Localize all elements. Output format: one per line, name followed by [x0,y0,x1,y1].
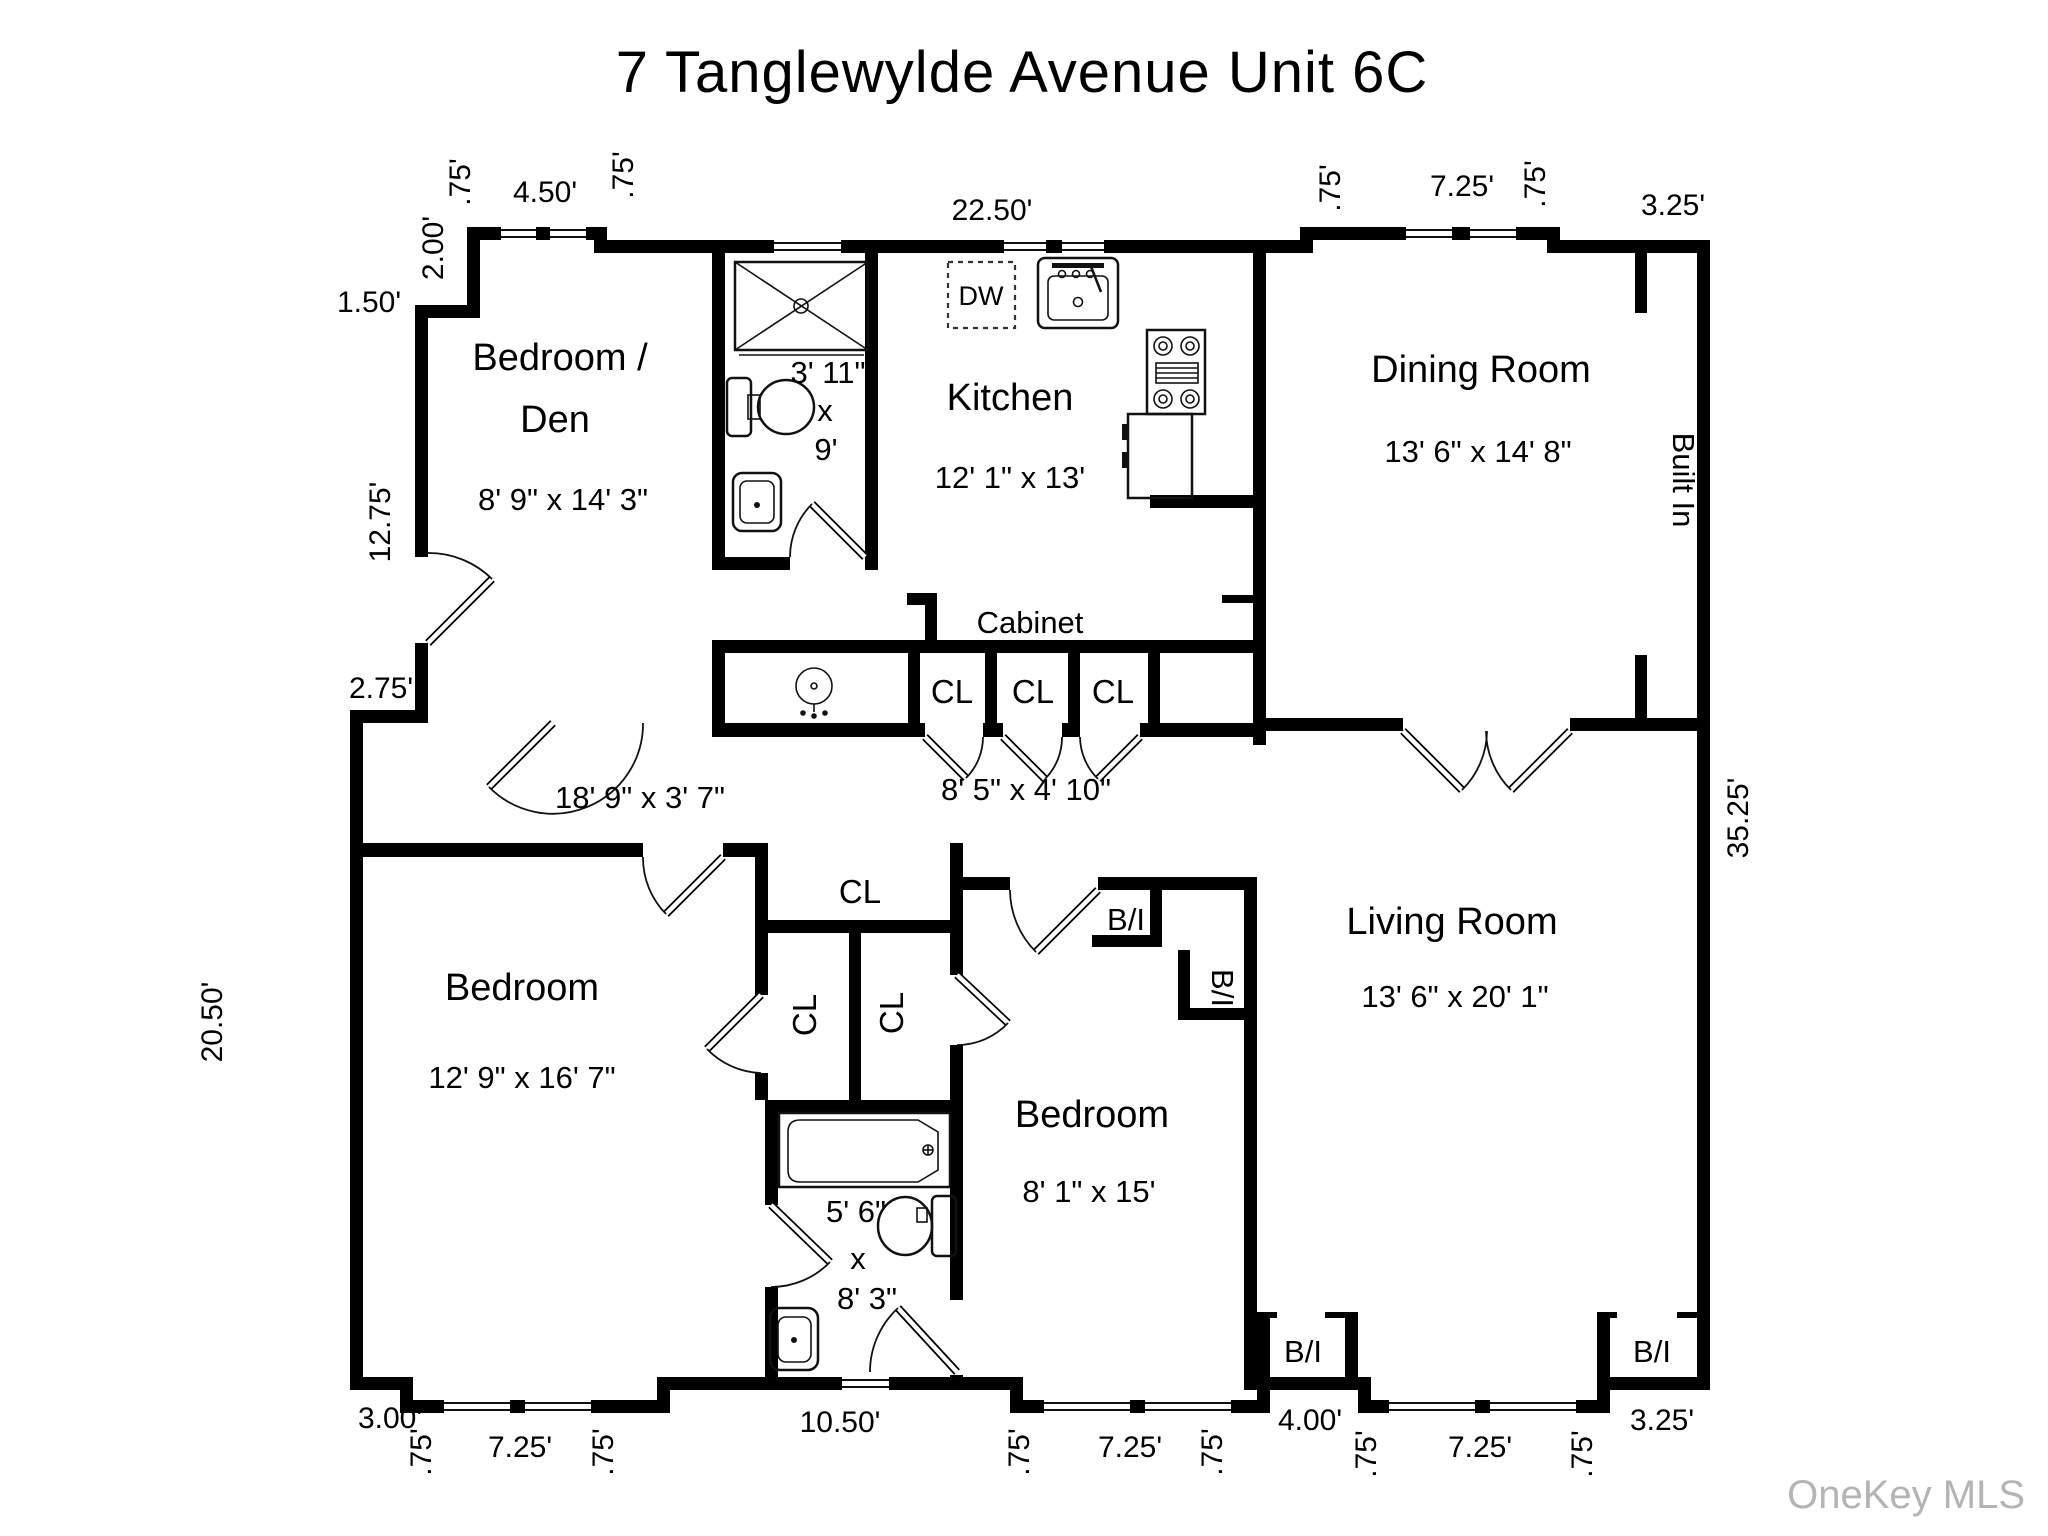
room-dining: Dining Room [1371,349,1591,391]
dim-bot-075-b: .75' [587,1428,620,1475]
bathtub [779,1113,950,1187]
dim-top-200: 2.00' [417,216,450,280]
dim-bot-075-f: .75' [1566,1430,1599,1477]
dims-bedroom-middle: 8' 1" x 15' [1022,1174,1155,1209]
closet-label-1: CL [931,673,973,710]
dim-bot-725-b: 7.25' [1098,1431,1162,1464]
room-kitchen: Kitchen [947,377,1074,419]
dims-bath-lower-w: 5' 6" [826,1194,886,1229]
room-bedroom-left: Bedroom [445,967,599,1009]
dims-bath-upper-w: 3' 11" [791,355,866,390]
dim-left-275: 2.75' [349,672,413,705]
closet-left-door [707,995,761,1073]
dims-bath-lower-l: 8' 3" [837,1281,897,1316]
closet-label-6: CL [873,992,910,1034]
dim-bot-325: 3.25' [1630,1404,1694,1437]
bath-upper-door [790,504,865,557]
built-in-2: B/I [1205,969,1240,1007]
dim-top-075-b: .75' [607,151,640,198]
entry-door [428,553,492,643]
dim-top-075-c: .75' [1314,164,1347,211]
stove [1147,330,1205,414]
room-living: Living Room [1346,901,1557,943]
kitchen-sink [1038,258,1118,328]
dims-hallway: 18' 9" x 3' 7" [555,780,725,815]
ceiling-light [796,668,832,719]
dims-bath-lower-x: x [850,1241,866,1276]
closet-label-2: CL [1012,673,1054,710]
bedroom-left-door [643,857,723,914]
dim-bot-075-c: .75' [1003,1428,1036,1475]
dims-bedroom-left: 12' 9" x 16' 7" [428,1060,615,1095]
closet-label-3: CL [1092,673,1134,710]
dim-bot-1050: 10.50' [800,1406,881,1439]
dim-bot-075-a: .75' [405,1428,438,1475]
dims-living: 13' 6" x 20' 1" [1361,979,1548,1014]
dim-top-075-d: .75' [1519,160,1552,207]
floor-plan-page: 7 Tanglewylde Avenue Unit 6C Bedroom / D… [0,0,2048,1536]
built-in-1: B/I [1107,902,1145,937]
built-in-3: B/I [1284,1334,1322,1369]
watermark: OneKey MLS [1787,1473,2025,1517]
room-bedroom-middle: Bedroom [1015,1094,1169,1136]
closet-label-5: CL [786,994,823,1036]
dim-top-2250: 22.50' [952,194,1033,227]
refrigerator [1122,414,1192,498]
dim-right-3525: 35.25' [1722,778,1755,859]
dims-dining: 13' 6" x 14' 8" [1384,434,1571,469]
dim-top-075-a: .75' [444,158,477,205]
sink-upper [733,473,781,531]
dim-bot-725-c: 7.25' [1448,1431,1512,1464]
room-bedroom-den-line1: Bedroom / [472,337,648,379]
toilet-lower [878,1196,956,1256]
built-in-4: B/I [1633,1334,1671,1369]
dims-bath-upper-x: x [817,393,833,428]
bedroom-middle-door [1010,890,1098,952]
dim-bot-400: 4.00' [1278,1404,1342,1437]
living-room-double-door [1403,731,1570,790]
bedroom-middle-second-door [870,1308,957,1372]
dim-top-725: 7.25' [1430,170,1494,203]
dim-left-1275: 12.75' [364,482,397,563]
page-title: 7 Tanglewylde Avenue Unit 6C [616,40,1429,105]
dishwasher-label: DW [959,281,1004,311]
dims-bath-upper-l: 9' [814,432,837,467]
dim-top-150: 1.50' [337,286,401,319]
dim-bot-075-d: .75' [1196,1428,1229,1475]
dim-top-325: 3.25' [1641,189,1705,222]
room-bedroom-den-line2: Den [520,399,590,441]
cabinet-label: Cabinet [977,605,1084,640]
dim-top-450: 4.50' [513,176,577,209]
dims-kitchen: 12' 1" x 13' [935,460,1085,495]
bath-lower-door [771,1205,830,1287]
floor-plan-canvas: 7 Tanglewylde Avenue Unit 6C Bedroom / D… [0,0,2048,1536]
dim-left-2050: 20.50' [196,982,229,1063]
dims-bedroom-den: 8' 9" x 14' 3" [478,482,648,517]
closet-right-door [957,975,1008,1045]
built-in-full: Built In [1666,433,1701,528]
closet-label-4: CL [839,873,881,910]
dims-foyer: 8' 5" x 4' 10" [941,772,1111,807]
dim-bot-075-e: .75' [1350,1430,1383,1477]
shower [735,262,868,355]
dim-bot-725-a: 7.25' [488,1431,552,1464]
